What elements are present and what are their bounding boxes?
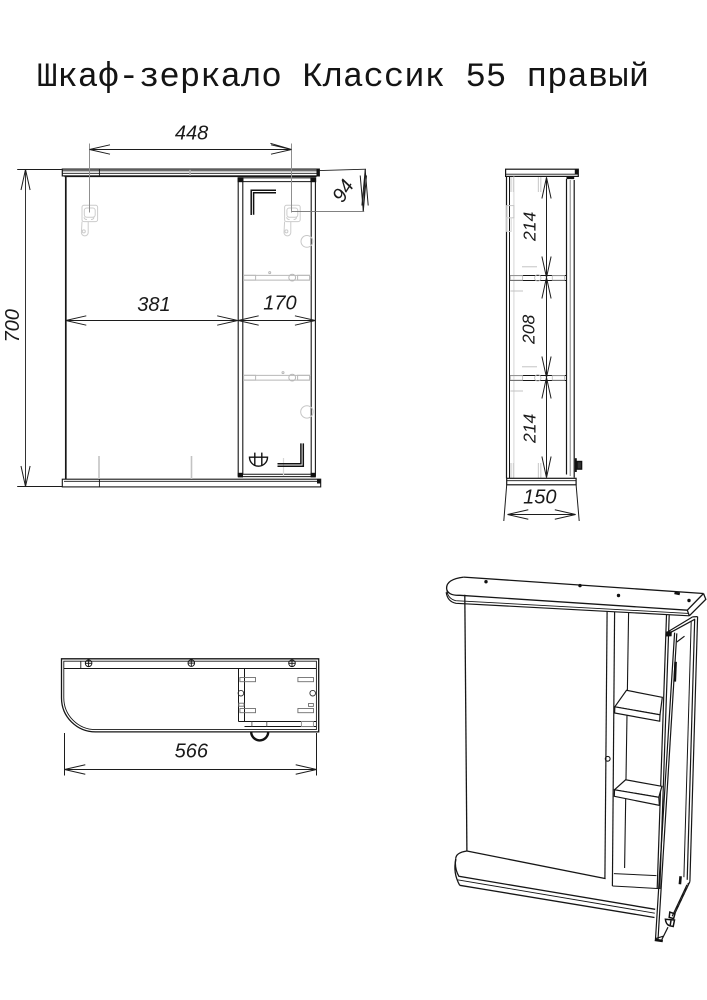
svg-text:566: 566 bbox=[175, 740, 209, 762]
svg-text:381: 381 bbox=[137, 294, 170, 316]
svg-text:214: 214 bbox=[520, 414, 540, 444]
svg-text:150: 150 bbox=[523, 487, 556, 509]
svg-text:214: 214 bbox=[520, 212, 540, 242]
svg-text:94: 94 bbox=[328, 176, 359, 207]
svg-text:448: 448 bbox=[175, 123, 208, 145]
svg-text:208: 208 bbox=[519, 315, 539, 345]
svg-text:170: 170 bbox=[263, 292, 296, 314]
svg-text:700: 700 bbox=[2, 309, 24, 342]
svg-text:Шкаф-зеркало Классик 55 правый: Шкаф-зеркало Классик 55 правый bbox=[37, 59, 649, 97]
